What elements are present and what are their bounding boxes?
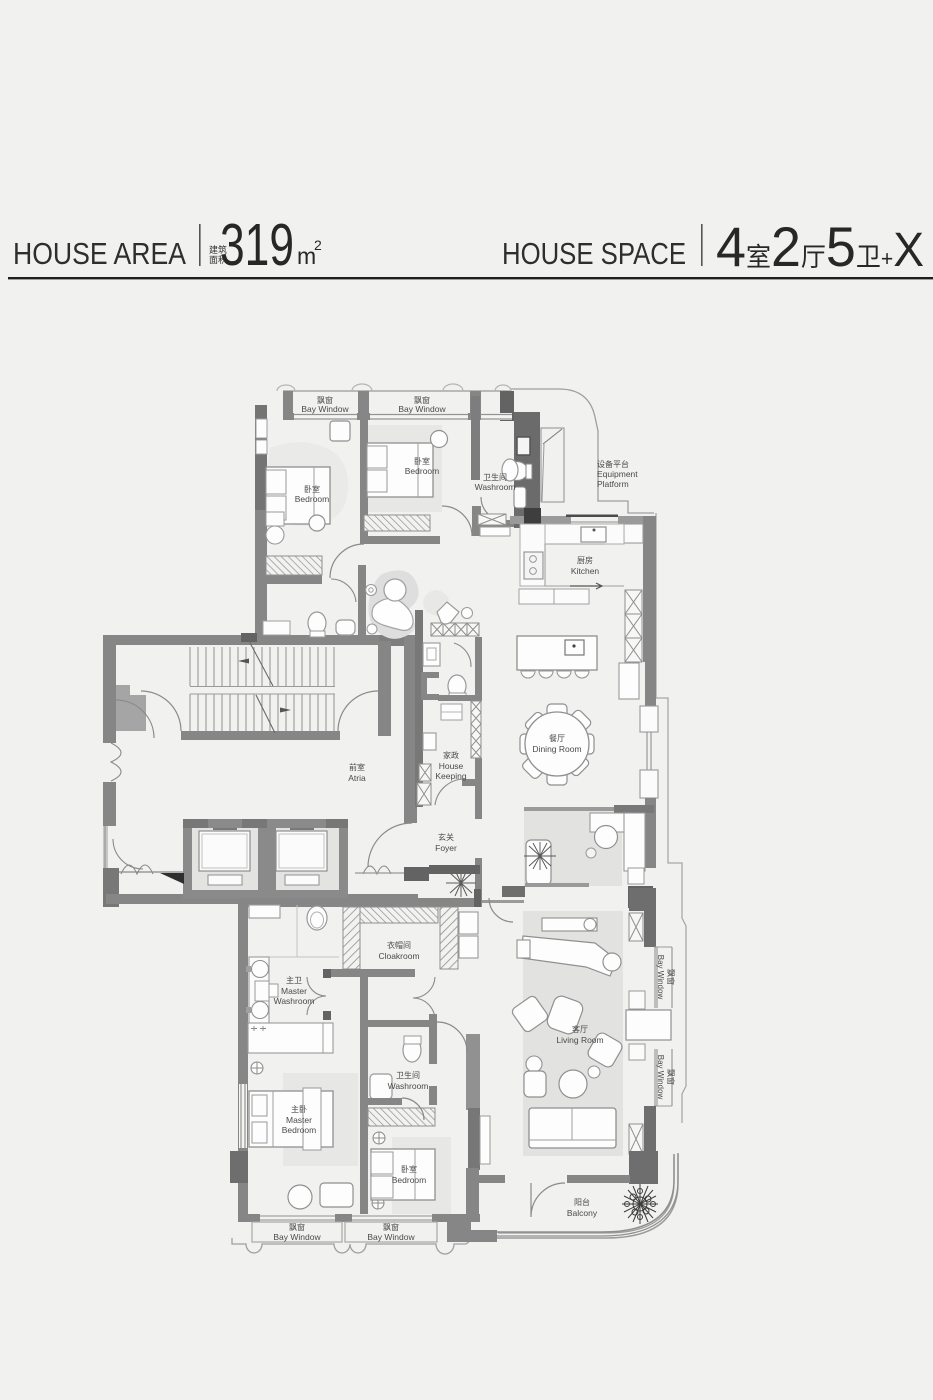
- svg-text:Bay Window: Bay Window: [656, 1055, 665, 1100]
- svg-text:卫生间: 卫生间: [396, 1070, 420, 1080]
- svg-text:飘窗: 飘窗: [289, 1222, 305, 1232]
- svg-text:飘窗: 飘窗: [666, 1069, 676, 1085]
- svg-text:设备平台: 设备平台: [597, 459, 629, 469]
- svg-text:Washroom: Washroom: [388, 1081, 429, 1091]
- svg-text:卧室: 卧室: [401, 1164, 417, 1174]
- svg-text:客厅: 客厅: [572, 1024, 588, 1034]
- svg-text:Bedroom: Bedroom: [392, 1175, 427, 1185]
- svg-text:Washroom: Washroom: [274, 996, 315, 1006]
- svg-text:Master: Master: [286, 1115, 312, 1125]
- svg-text:Bedroom: Bedroom: [295, 494, 330, 504]
- svg-text:Cloakroom: Cloakroom: [378, 951, 419, 961]
- svg-text:Dining Room: Dining Room: [532, 744, 581, 754]
- svg-text:2: 2: [314, 237, 322, 253]
- svg-text:衣帽间: 衣帽间: [387, 940, 411, 950]
- svg-text:餐厅: 餐厅: [549, 734, 565, 743]
- svg-text:Bedroom: Bedroom: [405, 466, 440, 476]
- svg-text:飘窗: 飘窗: [383, 1222, 399, 1232]
- svg-text:Equipment: Equipment: [597, 469, 638, 479]
- svg-text:Bedroom: Bedroom: [282, 1125, 317, 1135]
- svg-text:主卫: 主卫: [286, 975, 302, 985]
- svg-text:卧室: 卧室: [414, 456, 430, 466]
- svg-text:Bay Window: Bay Window: [367, 1232, 415, 1242]
- svg-text:HOUSE SPACE: HOUSE SPACE: [502, 236, 686, 271]
- svg-text:前室: 前室: [349, 762, 365, 772]
- svg-text:Bay Window: Bay Window: [301, 404, 349, 414]
- svg-text:Bay Window: Bay Window: [398, 404, 446, 414]
- svg-text:319: 319: [220, 212, 294, 278]
- svg-text:Platform: Platform: [597, 479, 629, 489]
- svg-text:厨房: 厨房: [577, 555, 593, 565]
- svg-text:主卧: 主卧: [291, 1104, 307, 1114]
- svg-text:Balcony: Balcony: [567, 1208, 598, 1218]
- svg-text:卫生间: 卫生间: [483, 472, 507, 482]
- svg-text:Living Room: Living Room: [556, 1035, 603, 1045]
- svg-text:Foyer: Foyer: [435, 843, 457, 853]
- svg-text:玄关: 玄关: [438, 832, 454, 842]
- svg-text:Washroom: Washroom: [475, 482, 516, 492]
- svg-text:家政: 家政: [443, 750, 459, 760]
- svg-text:HOUSE AREA: HOUSE AREA: [13, 236, 186, 271]
- svg-text:Keeping: Keeping: [435, 771, 466, 781]
- svg-text:Kitchen: Kitchen: [571, 566, 600, 576]
- svg-text:Master: Master: [281, 986, 307, 996]
- svg-text:Bay Window: Bay Window: [656, 955, 665, 1000]
- svg-text:卧室: 卧室: [304, 484, 320, 494]
- svg-text:飘窗: 飘窗: [666, 969, 676, 985]
- svg-text:House: House: [439, 761, 464, 771]
- svg-text:阳台: 阳台: [574, 1197, 590, 1207]
- svg-text:Bay Window: Bay Window: [273, 1232, 321, 1242]
- svg-text:Atria: Atria: [348, 773, 366, 783]
